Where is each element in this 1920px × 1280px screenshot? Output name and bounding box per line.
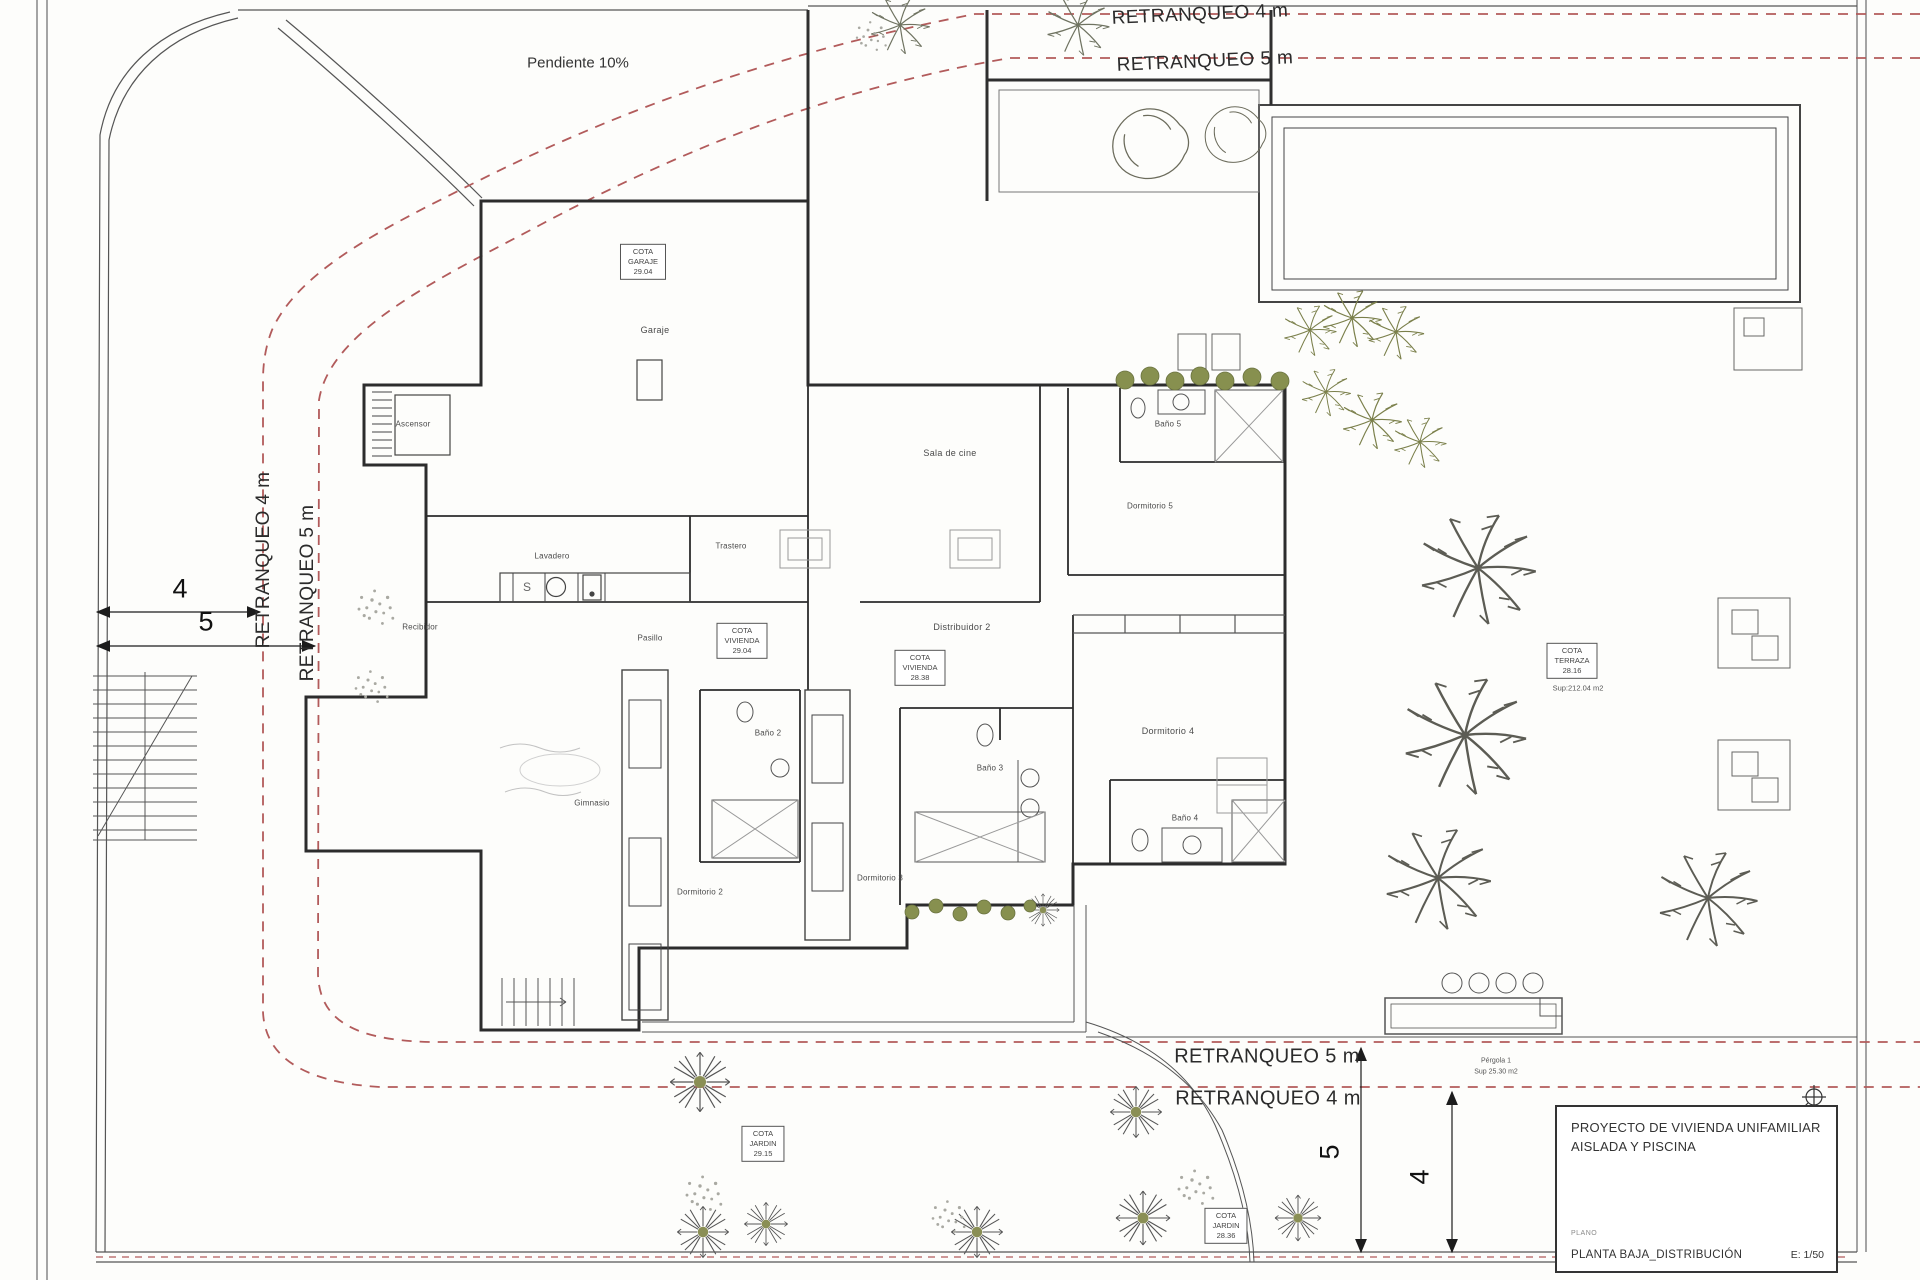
title-block: PROYECTO DE VIVIENDA UNIFAMILIAR AISLADA… [1555,1105,1838,1273]
exterior-stairs [93,672,197,840]
room-label-bano-2: Baño 2 [755,729,782,738]
cota-terraza-m: TERRAZA [1554,656,1589,666]
cota-jardin1-m: JARDIN [749,1139,776,1149]
cota-jardin2-box: COTA JARDIN 28.36 [1204,1208,1247,1244]
gravel-specks [355,21,1215,1233]
room-label-dormitorio-5: Dormitorio 5 [1127,502,1173,511]
cota-terraza-v: 28.16 [1554,666,1589,676]
palm-trees [1387,516,1758,947]
room-label-dormitorio-4: Dormitorio 4 [1142,726,1195,736]
dim-bottom-4: 4 [1405,1169,1436,1184]
sink-letter: S [523,580,531,594]
room-label-trastero: Trastero [715,542,746,551]
pergola-area: Sup 25.30 m2 [1474,1069,1518,1076]
cota-vivienda1-t: COTA [724,626,759,636]
bush-row-pool [1116,367,1289,390]
cota-terraza-box: COTA TERRAZA 28.16 [1546,643,1597,679]
cota-vivienda2-v: 28.38 [902,673,937,683]
cota-vivienda2-m: VIVIENDA [902,663,937,673]
room-label-sala-de-cine: Sala de cine [923,448,976,458]
interior-stairs [502,978,574,1026]
cota-jardin2-m: JARDIN [1212,1221,1239,1231]
bathroom-fixtures [712,390,1285,862]
cota-jardin1-box: COTA JARDIN 29.15 [741,1126,784,1162]
fern-bushes [1284,291,1446,468]
room-label-pasillo: Pasillo [638,634,663,643]
room-label-bano-3: Baño 3 [977,764,1004,773]
cota-terraza-sup: Sup:212.04 m2 [1553,684,1604,693]
garage-pillar [637,360,662,400]
cota-vivienda2-t: COTA [902,653,937,663]
setback-left-4m-label: RETRANQUEO 4 m [253,472,275,649]
upper-structure [808,10,1271,201]
cota-vivienda1-v: 29.04 [724,646,759,656]
cota-vivienda1-m: VIVIENDA [724,636,759,646]
room-label-dormitorio-2: Dormitorio 2 [677,888,723,897]
sheet-name: PLANTA BAJA_DISTRIBUCIÓN [1571,1249,1742,1261]
wardrobes [622,670,850,1020]
cota-terraza-t: COTA [1554,646,1589,656]
vegetation [355,0,1758,1258]
dim-left-5: 5 [198,607,213,638]
setback-bottom-4m-label: RETRANQUEO 4 m [1175,1088,1361,1111]
cota-vivienda1-box: COTA VIVIENDA 29.04 [716,623,767,659]
sheet-scale: E: 1/50 [1791,1249,1824,1261]
slope-label: Pendiente 10% [527,55,629,72]
floor-plan-sheet: Pendiente 10% RETRANQUEO 4 m RETRANQUEO … [0,0,1920,1280]
plano-label: PLANO [1571,1230,1597,1237]
dim-left-4: 4 [172,574,187,605]
parcel-boundary [96,6,1857,1262]
room-label-bano-4: Baño 4 [1172,814,1199,823]
room-label-recibidor: Recibidor [402,623,438,632]
pool [1259,105,1800,302]
cota-garaje-box: COTA GARAJE 29.04 [620,244,666,280]
room-label-gimnasio: Gimnasio [574,799,609,808]
project-title-line2: AISLADA Y PISCINA [1571,1138,1821,1157]
bush-row-south [905,899,1036,921]
pergola [1385,973,1562,1034]
house-walls [306,201,1285,1030]
cota-jardin2-v: 28.36 [1212,1231,1239,1241]
room-label-garaje: Garaje [641,325,670,335]
pergola-name: Pérgola 1 [1481,1058,1511,1065]
room-label-ascensor: Ascensor [396,420,431,429]
floor-plan-drawing [0,0,1920,1280]
cota-garaje-v: 29.04 [628,267,658,277]
room-label-lavadero: Lavadero [535,552,570,561]
room-label-bano-5: Baño 5 [1155,420,1182,429]
setback-left-5m-label: RETRANQUEO 5 m [297,505,319,682]
room-label-distribuidor-2: Distribuidor 2 [933,622,990,632]
cota-vivienda2-box: COTA VIVIENDA 28.38 [894,650,945,686]
project-title: PROYECTO DE VIVIENDA UNIFAMILIAR AISLADA… [1571,1119,1821,1157]
cota-jardin1-t: COTA [749,1129,776,1139]
room-label-dormitorio-3: Dormitorio 3 [857,874,903,883]
setback-bottom-5m-label: RETRANQUEO 5 m [1174,1046,1360,1069]
setback-lines [96,14,1920,1257]
dim-bottom-5: 5 [1315,1144,1346,1159]
cota-garaje-t: COTA [628,247,658,257]
cota-jardin1-v: 29.15 [749,1149,776,1159]
cota-garaje-m: GARAJE [628,257,658,267]
cota-jardin2-t: COTA [1212,1211,1239,1221]
project-title-line1: PROYECTO DE VIVIENDA UNIFAMILIAR [1571,1119,1821,1138]
